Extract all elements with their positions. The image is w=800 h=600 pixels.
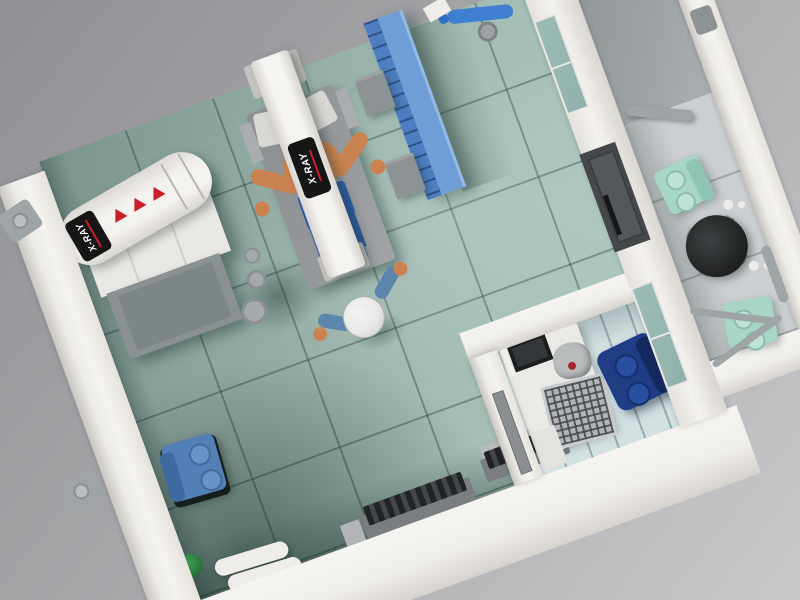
window-mullion [552, 61, 571, 70]
fixture-stud [9, 210, 31, 232]
render-viewport[interactable]: X-RAY X-RAY [0, 0, 800, 600]
red-arrow-icon [109, 205, 127, 222]
window-mullion [650, 332, 669, 341]
wall-fixture [57, 467, 107, 515]
capsule-seam [178, 154, 206, 200]
red-arrow-icon [128, 194, 146, 211]
xray-scanner-label-text: X-RAY [74, 219, 102, 253]
red-arrow-icon [147, 183, 165, 200]
room-plan: X-RAY X-RAY [0, 0, 800, 600]
xray-gantry-label-text: X-RAY [297, 150, 321, 186]
fixture-stud [71, 480, 93, 502]
capsule-seam [160, 164, 188, 210]
